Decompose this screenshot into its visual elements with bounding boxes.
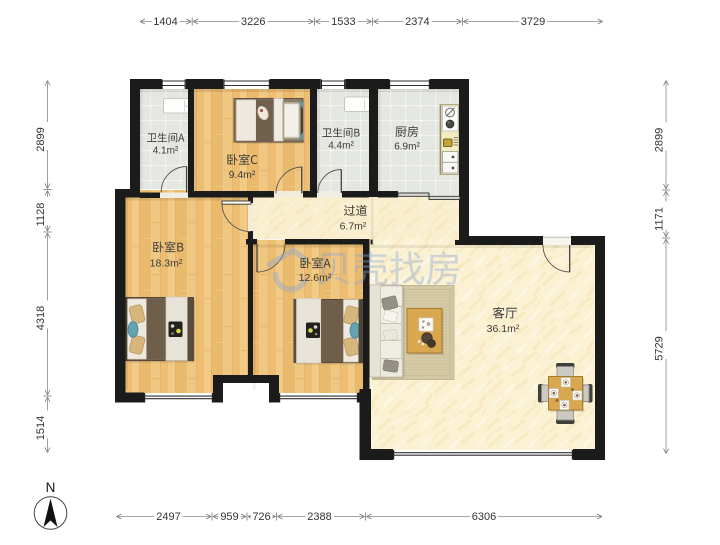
svg-text:2374: 2374 [405,16,429,28]
svg-text:3226: 3226 [241,16,265,28]
svg-text:2899: 2899 [35,127,47,151]
svg-text:726: 726 [252,511,270,523]
svg-text:18.3m²: 18.3m² [150,258,183,270]
svg-text:4.4m²: 4.4m² [328,141,354,152]
svg-text:1514: 1514 [35,416,47,440]
svg-text:959: 959 [220,511,238,523]
svg-text:6306: 6306 [472,511,496,523]
svg-text:36.1m²: 36.1m² [487,323,520,335]
svg-text:6.7m²: 6.7m² [340,221,367,233]
svg-text:1128: 1128 [35,203,47,227]
svg-text:5729: 5729 [654,336,666,360]
svg-text:3729: 3729 [521,16,545,28]
svg-text:2497: 2497 [156,511,180,523]
svg-text:N: N [46,480,56,495]
svg-text:9.4m²: 9.4m² [229,169,256,181]
svg-text:4318: 4318 [35,306,47,330]
svg-text:2899: 2899 [654,128,666,152]
svg-text:1404: 1404 [153,16,177,28]
svg-text:4.1m²: 4.1m² [153,146,179,157]
svg-text:1171: 1171 [654,207,666,231]
svg-text:12.6m²: 12.6m² [299,272,332,284]
svg-text:6.9m²: 6.9m² [394,142,420,153]
svg-text:1533: 1533 [331,16,355,28]
svg-text:2388: 2388 [307,511,331,523]
